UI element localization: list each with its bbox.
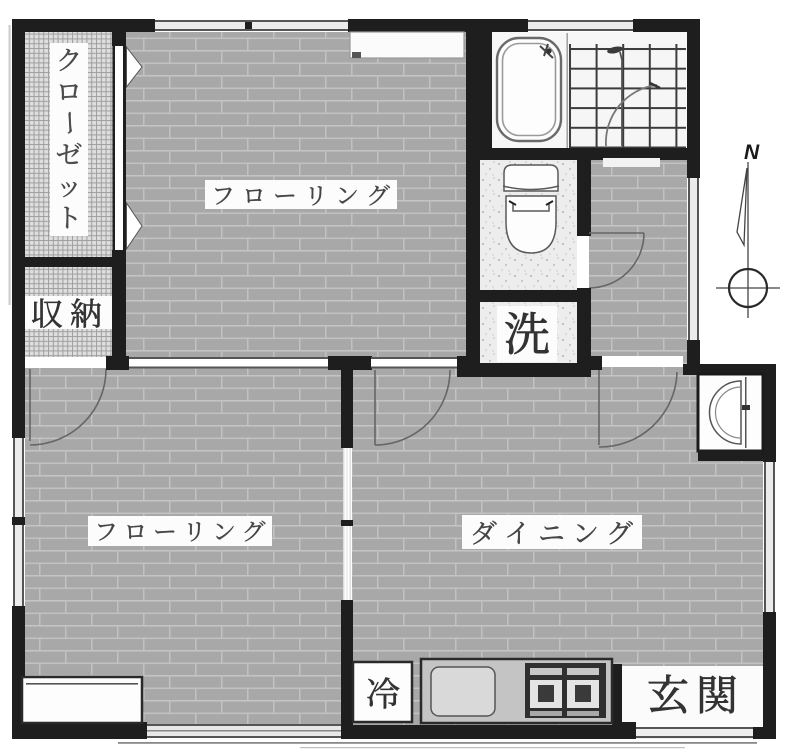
svg-text:N: N (744, 141, 760, 164)
